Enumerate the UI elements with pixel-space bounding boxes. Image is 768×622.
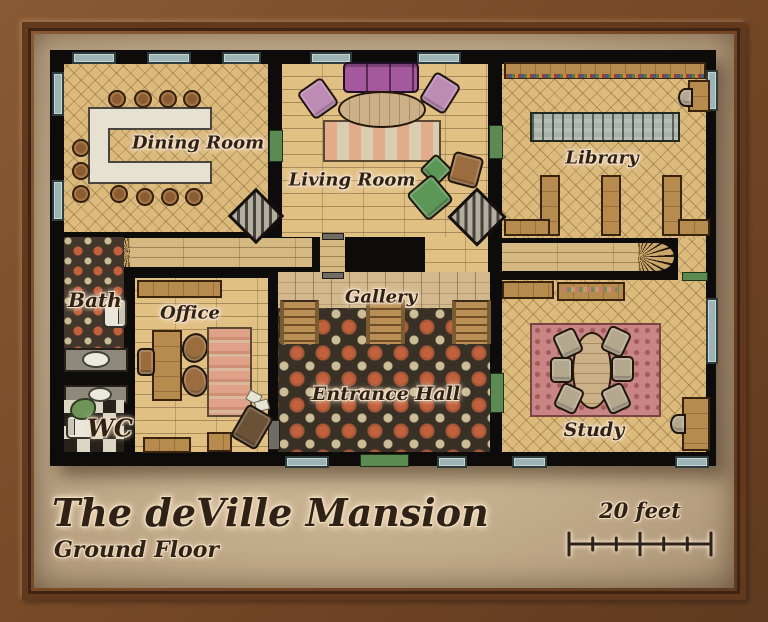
sofa xyxy=(343,62,419,93)
office-small-table xyxy=(207,432,232,452)
map-subtitle: Ground Floor xyxy=(54,537,219,563)
dining-stool xyxy=(161,188,179,206)
library-stack-base xyxy=(678,219,710,236)
door-landing-south xyxy=(322,272,344,279)
dining-stool xyxy=(185,188,203,206)
dining-stool xyxy=(72,185,90,203)
study-console-table xyxy=(557,282,625,301)
scale-bar xyxy=(565,528,715,558)
map-title: The deVille Mansion xyxy=(52,490,489,535)
office-rug xyxy=(207,327,252,417)
scale-label: 20 feet xyxy=(565,498,715,523)
door-dining-living xyxy=(269,130,283,162)
room-label-gallery: Gallery xyxy=(345,287,417,308)
room-label-bath: Bath xyxy=(68,288,122,312)
coffee-table xyxy=(338,91,426,128)
door-entrance-study xyxy=(490,373,504,413)
door-landing-north xyxy=(322,233,344,240)
window xyxy=(52,72,64,116)
window xyxy=(222,52,261,64)
study-chair xyxy=(611,356,634,382)
library-stack xyxy=(601,175,621,236)
window xyxy=(285,456,329,468)
gallery-stairs xyxy=(452,300,491,344)
library-bookshelf-wall xyxy=(504,62,706,79)
dining-stool xyxy=(110,185,128,203)
office-sideboard-bottom xyxy=(143,437,191,453)
window xyxy=(147,52,191,64)
window xyxy=(706,298,718,364)
dining-stool xyxy=(108,90,126,108)
spiral-stairs-east xyxy=(638,243,674,271)
room-label-wc: WC xyxy=(87,414,133,443)
room-label-living: Living Room xyxy=(289,170,416,191)
dining-stool xyxy=(72,162,90,180)
study-desk xyxy=(682,397,710,451)
room-label-library: Library xyxy=(565,148,638,169)
dining-stool xyxy=(72,139,90,157)
dining-stool xyxy=(134,90,152,108)
window xyxy=(675,456,709,468)
corridor-landing-floor xyxy=(320,237,345,275)
gallery-stairs xyxy=(280,300,319,344)
office-sideboard-top xyxy=(137,280,222,298)
window xyxy=(417,52,461,64)
books-row xyxy=(506,74,704,78)
study-chair xyxy=(550,357,573,383)
dining-stool xyxy=(183,90,201,108)
study-sideboard xyxy=(502,281,554,299)
bath-sink xyxy=(82,351,110,368)
room-label-office: Office xyxy=(160,303,220,324)
library-desk-chair xyxy=(678,88,693,107)
window xyxy=(52,180,64,221)
library-reading-table xyxy=(530,112,680,142)
corridor-west-floor xyxy=(128,238,312,267)
room-label-study: Study xyxy=(564,419,625,441)
office-desk xyxy=(152,330,182,401)
window xyxy=(72,52,116,64)
main-entrance-door xyxy=(360,454,409,467)
room-label-dining: Dining Room xyxy=(132,133,264,154)
dining-stool xyxy=(159,90,177,108)
door-living-library xyxy=(489,125,503,159)
window xyxy=(512,456,547,468)
dining-stool xyxy=(136,188,154,206)
window xyxy=(437,456,467,468)
library-stack-base xyxy=(504,219,550,236)
toilet-tank xyxy=(68,419,75,435)
office-side-chair xyxy=(137,348,155,376)
room-label-entrance: Entrance Hall xyxy=(312,383,460,405)
corridor-east-floor xyxy=(502,243,640,271)
study-desk-chair xyxy=(670,414,686,434)
console-decor xyxy=(563,287,619,292)
door-library-study xyxy=(682,272,708,281)
mansion-map: Dining Room Living Room Library Bath Off… xyxy=(0,0,768,622)
